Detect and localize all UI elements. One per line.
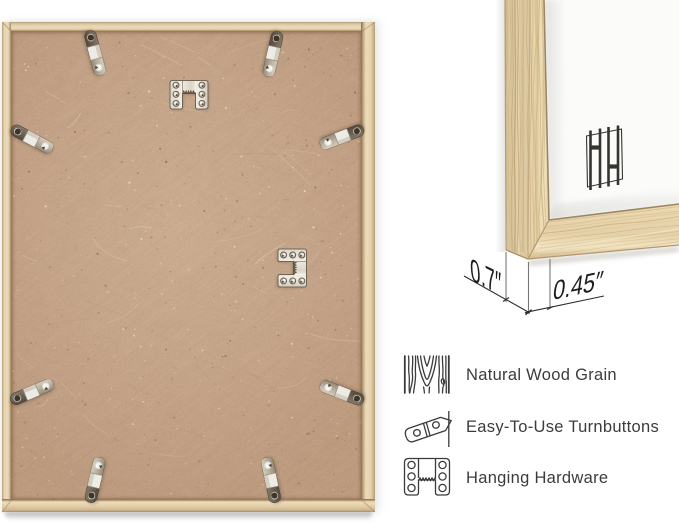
svg-text:0.7″: 0.7″ bbox=[469, 251, 503, 302]
svg-text:0.45″: 0.45″ bbox=[551, 265, 605, 306]
